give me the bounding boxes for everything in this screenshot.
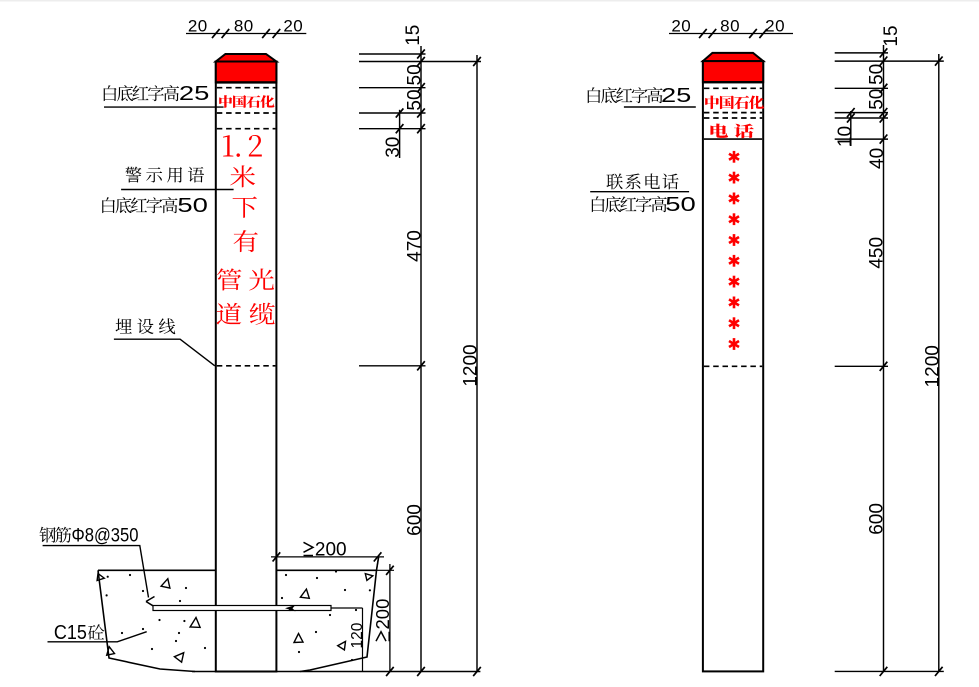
svg-text:50: 50 bbox=[404, 89, 425, 110]
svg-text:20: 20 bbox=[765, 16, 785, 35]
svg-text:20: 20 bbox=[283, 16, 303, 35]
svg-text:40: 40 bbox=[867, 148, 888, 169]
svg-text:600: 600 bbox=[404, 504, 425, 536]
svg-text:1200: 1200 bbox=[461, 344, 482, 386]
svg-text:15: 15 bbox=[403, 25, 424, 46]
svg-text:200: 200 bbox=[372, 599, 393, 630]
svg-text:Φ8@350: Φ8@350 bbox=[72, 525, 139, 546]
svg-text:25: 25 bbox=[179, 82, 210, 105]
svg-text:50: 50 bbox=[665, 193, 696, 216]
svg-text:1200: 1200 bbox=[922, 345, 943, 387]
svg-text:30: 30 bbox=[383, 137, 404, 158]
svg-text:80: 80 bbox=[720, 16, 740, 35]
svg-text:50: 50 bbox=[866, 89, 887, 110]
svg-text:25: 25 bbox=[661, 84, 691, 107]
svg-text:10: 10 bbox=[835, 126, 856, 147]
svg-text:C15: C15 bbox=[54, 622, 87, 644]
svg-text:15: 15 bbox=[881, 25, 902, 46]
svg-text:20: 20 bbox=[188, 16, 208, 35]
svg-text:50: 50 bbox=[177, 194, 208, 217]
svg-text:600: 600 bbox=[867, 503, 888, 535]
svg-text:470: 470 bbox=[404, 230, 425, 262]
svg-text:50: 50 bbox=[866, 64, 887, 85]
svg-text:50: 50 bbox=[404, 64, 425, 85]
svg-text:20: 20 bbox=[671, 16, 691, 35]
svg-text:450: 450 bbox=[867, 237, 888, 269]
svg-text:120: 120 bbox=[349, 622, 366, 648]
svg-text:80: 80 bbox=[234, 16, 254, 35]
